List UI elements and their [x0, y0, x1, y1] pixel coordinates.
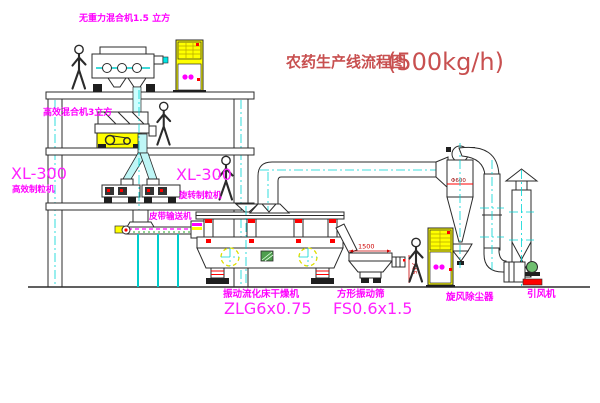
label-efficient-mixer: 高效混合机3立方: [43, 106, 112, 118]
gravity-mixer: [92, 47, 168, 112]
label-dryer-model: ZLG6x0.75: [224, 299, 312, 318]
person-second-level: [157, 102, 170, 144]
person-top-platform: [73, 45, 86, 88]
title-capacity: (500kg/h): [387, 48, 504, 76]
diagram-svg: Φ600 1500: [0, 0, 600, 403]
control-cabinet-right: [426, 228, 455, 288]
label-granulator-mid-model: XL-300: [176, 165, 232, 184]
label-granulator-left-name: 高效制粒机: [12, 184, 55, 195]
label-granulator-mid-name: 旋转制粒机: [178, 190, 222, 201]
label-screen-model: FS0.6x1.5: [333, 299, 412, 318]
label-gravity-mixer: 无重力混合机1.5 立方: [78, 12, 170, 24]
cyclone-diameter-dim: Φ600: [451, 178, 466, 184]
granulator-left: [102, 179, 140, 203]
dryer-legs: [206, 268, 334, 284]
induced-draft-fan: [504, 262, 542, 286]
label-granulator-left-model: XL-300: [11, 164, 67, 183]
diagram-title: 农药生产线流程图 (500kg/h): [285, 48, 504, 76]
fluid-bed-dryer: [191, 204, 344, 284]
flow-diagram-canvas: Φ600 1500: [0, 0, 600, 403]
exhaust-duct: [250, 162, 442, 213]
label-fan: 引风机: [527, 288, 556, 300]
screen-length-dim: 1500: [358, 243, 375, 251]
control-cabinet-top: [173, 40, 206, 93]
person-ground: [410, 238, 423, 281]
granulator-right: [142, 179, 180, 203]
label-cyclone: 旋风除尘器: [445, 291, 494, 303]
label-conveyor: 皮带输送机: [148, 211, 192, 222]
dryer-spring-mounts: [204, 219, 337, 237]
belt-conveyor: [115, 226, 197, 287]
vibrating-screen: 1500 745: [336, 224, 418, 283]
